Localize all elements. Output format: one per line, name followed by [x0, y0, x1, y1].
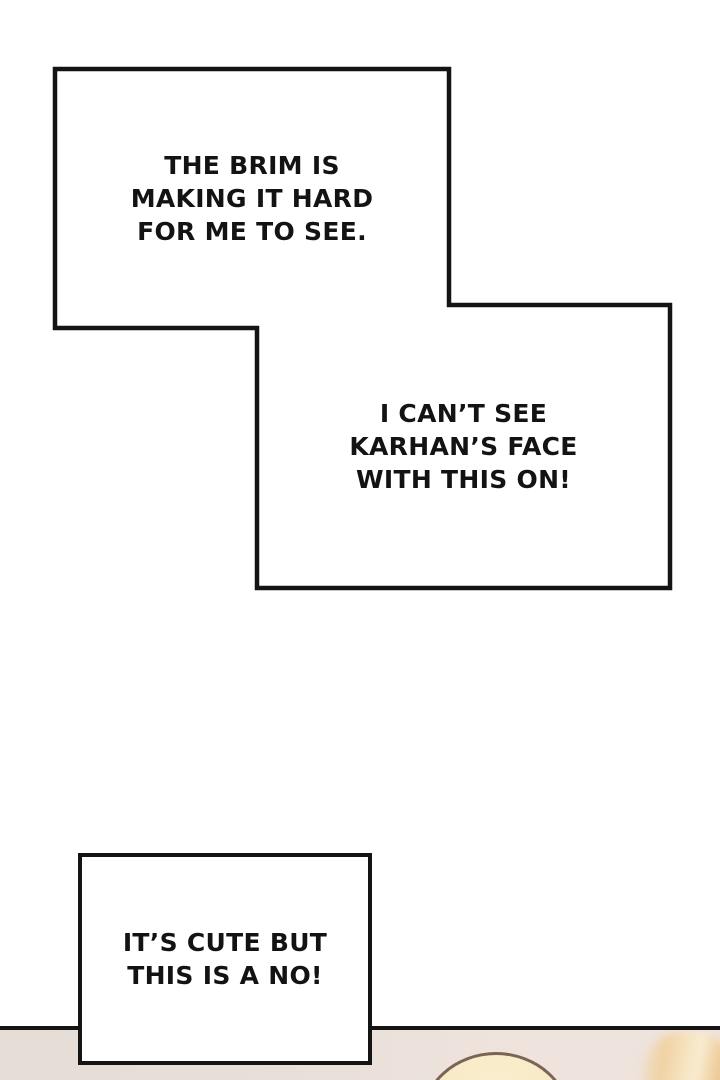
speech-line: WITH THIS ON!	[356, 463, 571, 496]
speech-line: IT’S CUTE BUT	[123, 926, 327, 959]
comic-page: THE BRIM IS MAKING IT HARD FOR ME TO SEE…	[0, 0, 720, 1080]
speech-line: I CAN’T SEE	[380, 397, 547, 430]
speech-bubble-brim-text: THE BRIM IS MAKING IT HARD FOR ME TO SEE…	[53, 67, 451, 330]
speech-bubble-cute-text: IT’S CUTE BUT THIS IS A NO!	[78, 853, 372, 1065]
speech-line: KARHAN’S FACE	[349, 430, 577, 463]
speech-bubble-karhan-text: I CAN’T SEE KARHAN’S FACE WITH THIS ON!	[255, 303, 672, 590]
speech-line: FOR ME TO SEE.	[137, 215, 367, 248]
character-head-artwork	[420, 1052, 572, 1080]
speech-line: MAKING IT HARD	[131, 182, 374, 215]
speech-line: THE BRIM IS	[164, 149, 340, 182]
speech-line: THIS IS A NO!	[127, 959, 323, 992]
blurred-foreground-artwork	[642, 1032, 720, 1080]
